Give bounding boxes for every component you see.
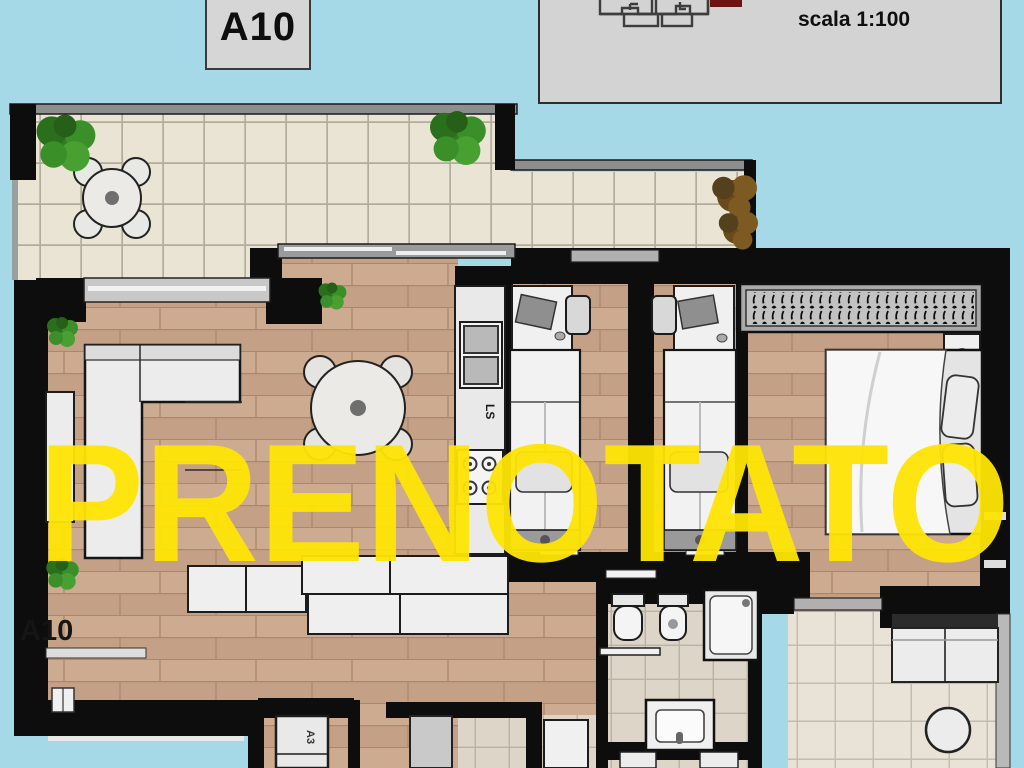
watermark-text: PRENOTATO	[38, 409, 1010, 597]
shower	[704, 590, 758, 660]
kitchen-sink	[460, 322, 502, 388]
bathroom-vanity	[646, 700, 714, 750]
laptop	[678, 295, 718, 329]
fixture	[620, 752, 656, 768]
toilet	[612, 594, 644, 640]
floorplan-image: LS	[0, 0, 1024, 768]
wardrobe	[740, 284, 982, 332]
desk-chair	[566, 296, 590, 334]
key-plan-thumbnail	[596, 0, 750, 40]
washer	[544, 720, 588, 768]
unit-label: A10	[20, 615, 73, 647]
side-table	[926, 708, 970, 752]
fixture	[700, 752, 738, 768]
bench-sofa	[892, 614, 998, 682]
bidet	[658, 594, 688, 640]
desk-chair	[652, 296, 676, 334]
highlighted-unit	[710, 0, 742, 7]
towel-rail	[600, 648, 660, 655]
cabinet-label: A3	[304, 730, 316, 744]
unit-badge-label: A10	[220, 5, 296, 50]
floor-plan: LS	[0, 0, 1024, 768]
hall-cabinet: A3	[276, 716, 328, 768]
key-plan-panel: scala 1:100	[538, 0, 1002, 104]
unit-badge: A10	[205, 0, 311, 70]
scale-label: scala 1:100	[798, 8, 910, 32]
terrace-table-set	[74, 158, 150, 238]
